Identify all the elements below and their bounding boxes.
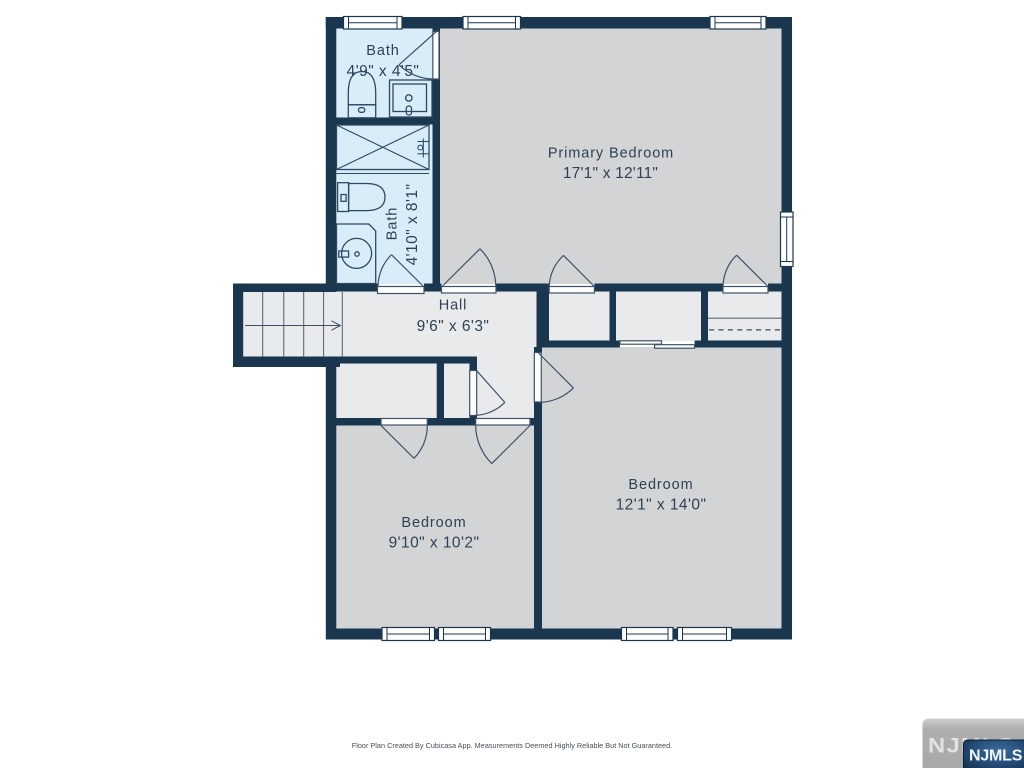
svg-text:Bedroom: Bedroom bbox=[628, 477, 693, 493]
svg-text:4'10" x 8'1": 4'10" x 8'1" bbox=[404, 184, 421, 266]
svg-text:Floor Plan Created By Cubicasa: Floor Plan Created By Cubicasa App. Meas… bbox=[352, 741, 672, 750]
svg-text:Hall: Hall bbox=[439, 298, 468, 314]
svg-text:Bedroom: Bedroom bbox=[401, 515, 466, 531]
svg-text:Primary Bedroom: Primary Bedroom bbox=[548, 145, 674, 161]
svg-text:17'1" x 12'11": 17'1" x 12'11" bbox=[563, 165, 658, 182]
svg-text:Bath: Bath bbox=[385, 207, 401, 240]
svg-text:Bath: Bath bbox=[366, 43, 399, 59]
svg-text:NJMLS: NJMLS bbox=[969, 748, 1023, 765]
svg-text:9'6" x 6'3": 9'6" x 6'3" bbox=[417, 318, 490, 335]
svg-text:4'9" x 4'5": 4'9" x 4'5" bbox=[347, 63, 420, 80]
svg-text:9'10" x 10'2": 9'10" x 10'2" bbox=[389, 535, 480, 552]
svg-text:12'1" x 14'0": 12'1" x 14'0" bbox=[616, 497, 707, 514]
